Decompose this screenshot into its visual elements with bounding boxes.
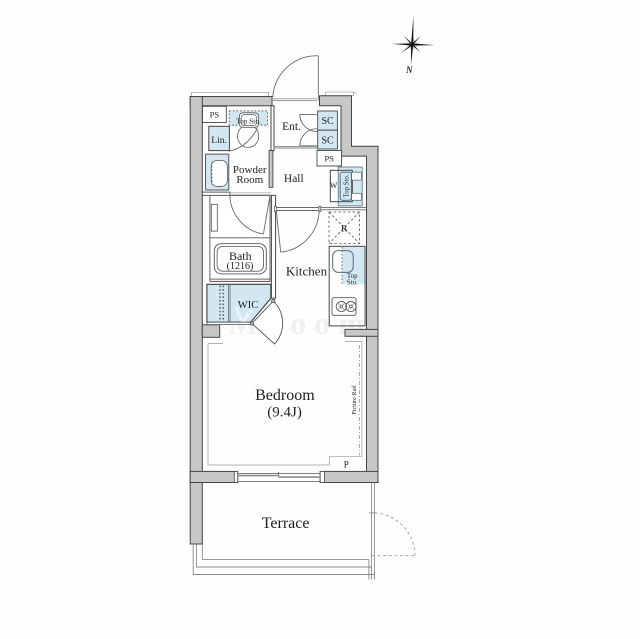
svg-text:Top Sto.: Top Sto. bbox=[236, 116, 261, 125]
svg-text:Room: Room bbox=[236, 174, 263, 186]
svg-text:Sto.: Sto. bbox=[347, 279, 358, 286]
svg-text:Bedroom: Bedroom bbox=[255, 387, 315, 404]
svg-text:PS: PS bbox=[210, 110, 220, 120]
svg-text:Ent.: Ent. bbox=[282, 121, 301, 133]
svg-text:W: W bbox=[330, 181, 338, 190]
svg-text:N: N bbox=[405, 65, 413, 75]
svg-text:PS: PS bbox=[324, 154, 334, 164]
svg-text:SC: SC bbox=[321, 135, 334, 146]
svg-text:R: R bbox=[341, 225, 348, 235]
svg-text:Terrace: Terrace bbox=[262, 515, 310, 532]
svg-text:WIC: WIC bbox=[238, 300, 258, 311]
svg-text:(1216): (1216) bbox=[227, 261, 254, 272]
svg-text:(9.4J): (9.4J) bbox=[267, 405, 302, 421]
svg-text:SC: SC bbox=[321, 116, 334, 127]
svg-text:Top Sto.: Top Sto. bbox=[343, 174, 350, 197]
svg-text:Hall: Hall bbox=[284, 173, 304, 185]
svg-text:Lin.: Lin. bbox=[211, 136, 227, 146]
svg-text:Kitchen: Kitchen bbox=[286, 264, 328, 279]
svg-text:P: P bbox=[344, 459, 349, 469]
svg-text:Picture Rail: Picture Rail bbox=[351, 385, 358, 415]
